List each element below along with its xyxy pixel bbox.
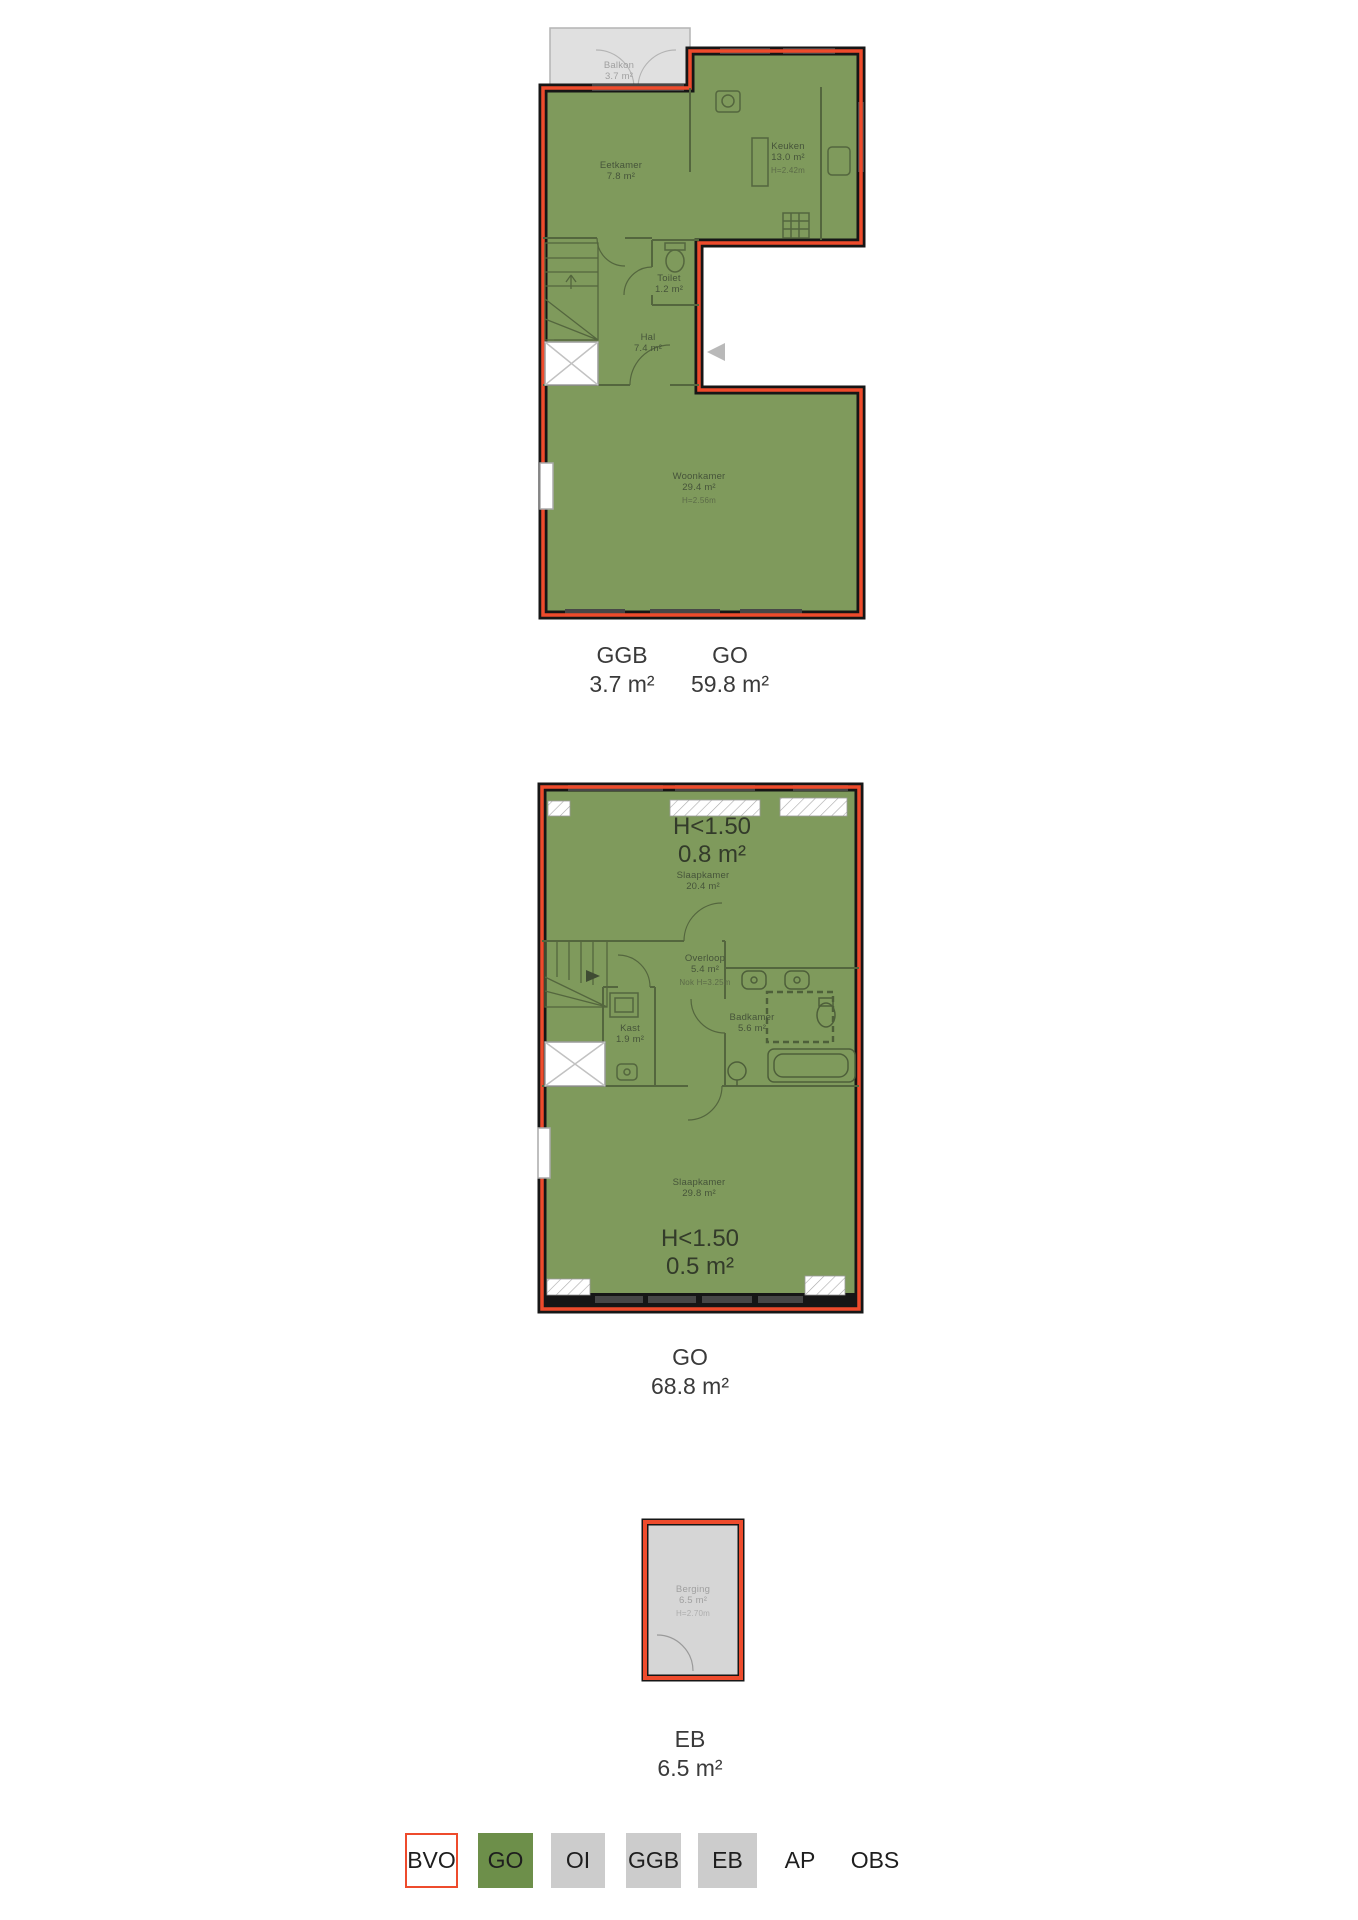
legend-label-ggb: GGB [628, 1847, 679, 1874]
low-height-note-bottom: H<1.50 0.5 m² [661, 1225, 739, 1281]
ground-floor-drawing [540, 27, 864, 619]
ground-floor-plan: Balkon 3.7 m² Eetkamer 7.8 m² Keuken 13.… [540, 27, 864, 619]
legend-label-obs: OBS [851, 1847, 900, 1874]
room-label-woonkamer: Woonkamer 29.4 m² H=2.56m [673, 471, 726, 506]
legend-label-go: GO [488, 1847, 524, 1874]
wall-niche [540, 463, 553, 509]
measurement-ggb: GGB 3.7 m² [589, 641, 654, 699]
room-label-keuken: Keuken 13.0 m² H=2.42m [771, 141, 805, 176]
legend-label-bvo: BVO [407, 1847, 456, 1874]
room-label-toilet: Toilet 1.2 m² [655, 273, 683, 295]
bottom-wall [542, 1293, 859, 1309]
room-label-berging: Berging 6.5 m² H=2.70m [676, 1584, 710, 1619]
legend-item-eb: EB [698, 1833, 757, 1888]
floorplan-page: Balkon 3.7 m² Eetkamer 7.8 m² Keuken 13.… [0, 0, 1358, 1920]
room-label-kast: Kast 1.9 m² [616, 1023, 644, 1045]
measurement-go-floor2: GO 68.8 m² [651, 1343, 729, 1401]
room-label-balkon: Balkon 3.7 m² [604, 60, 634, 82]
room-label-eetkamer: Eetkamer 7.8 m² [600, 160, 642, 182]
storage-plan: Berging 6.5 m² H=2.70m [641, 1518, 745, 1682]
shaft-x-box [545, 1042, 605, 1086]
legend-item-ap: AP [770, 1833, 830, 1888]
wall-niche [538, 1128, 550, 1178]
room-label-hal: Hal 7.4 m² [634, 332, 662, 354]
legend-label-ap: AP [785, 1847, 816, 1874]
shaft-x-box [545, 342, 598, 385]
room-label-badkamer: Badkamer 5.6 m² [730, 1012, 775, 1034]
low-height-note-top: H<1.50 0.8 m² [673, 813, 751, 869]
entrance-arrow-icon [707, 343, 725, 361]
room-label-overloop: Overloop 5.4 m² Nok H=3.25m [679, 953, 730, 988]
legend-item-oi: OI [551, 1833, 605, 1888]
measurement-go-floor1: GO 59.8 m² [691, 641, 769, 699]
legend-item-go: GO [478, 1833, 533, 1888]
upper-floor-plan: H<1.50 0.8 m² Slaapkamer 20.4 m² Overloo… [538, 781, 863, 1317]
legend-item-bvo: BVO [405, 1833, 458, 1888]
legend-label-oi: OI [566, 1847, 590, 1874]
legend-item-ggb: GGB [626, 1833, 681, 1888]
legend-label-eb: EB [712, 1847, 743, 1874]
legend-item-obs: OBS [845, 1833, 905, 1888]
room-label-slaapkamer-2: Slaapkamer 29.8 m² [673, 1177, 726, 1199]
room-label-slaapkamer-1: Slaapkamer 20.4 m² [677, 870, 730, 892]
floor-wall-outline [543, 51, 861, 615]
measurement-eb: EB 6.5 m² [657, 1725, 722, 1783]
